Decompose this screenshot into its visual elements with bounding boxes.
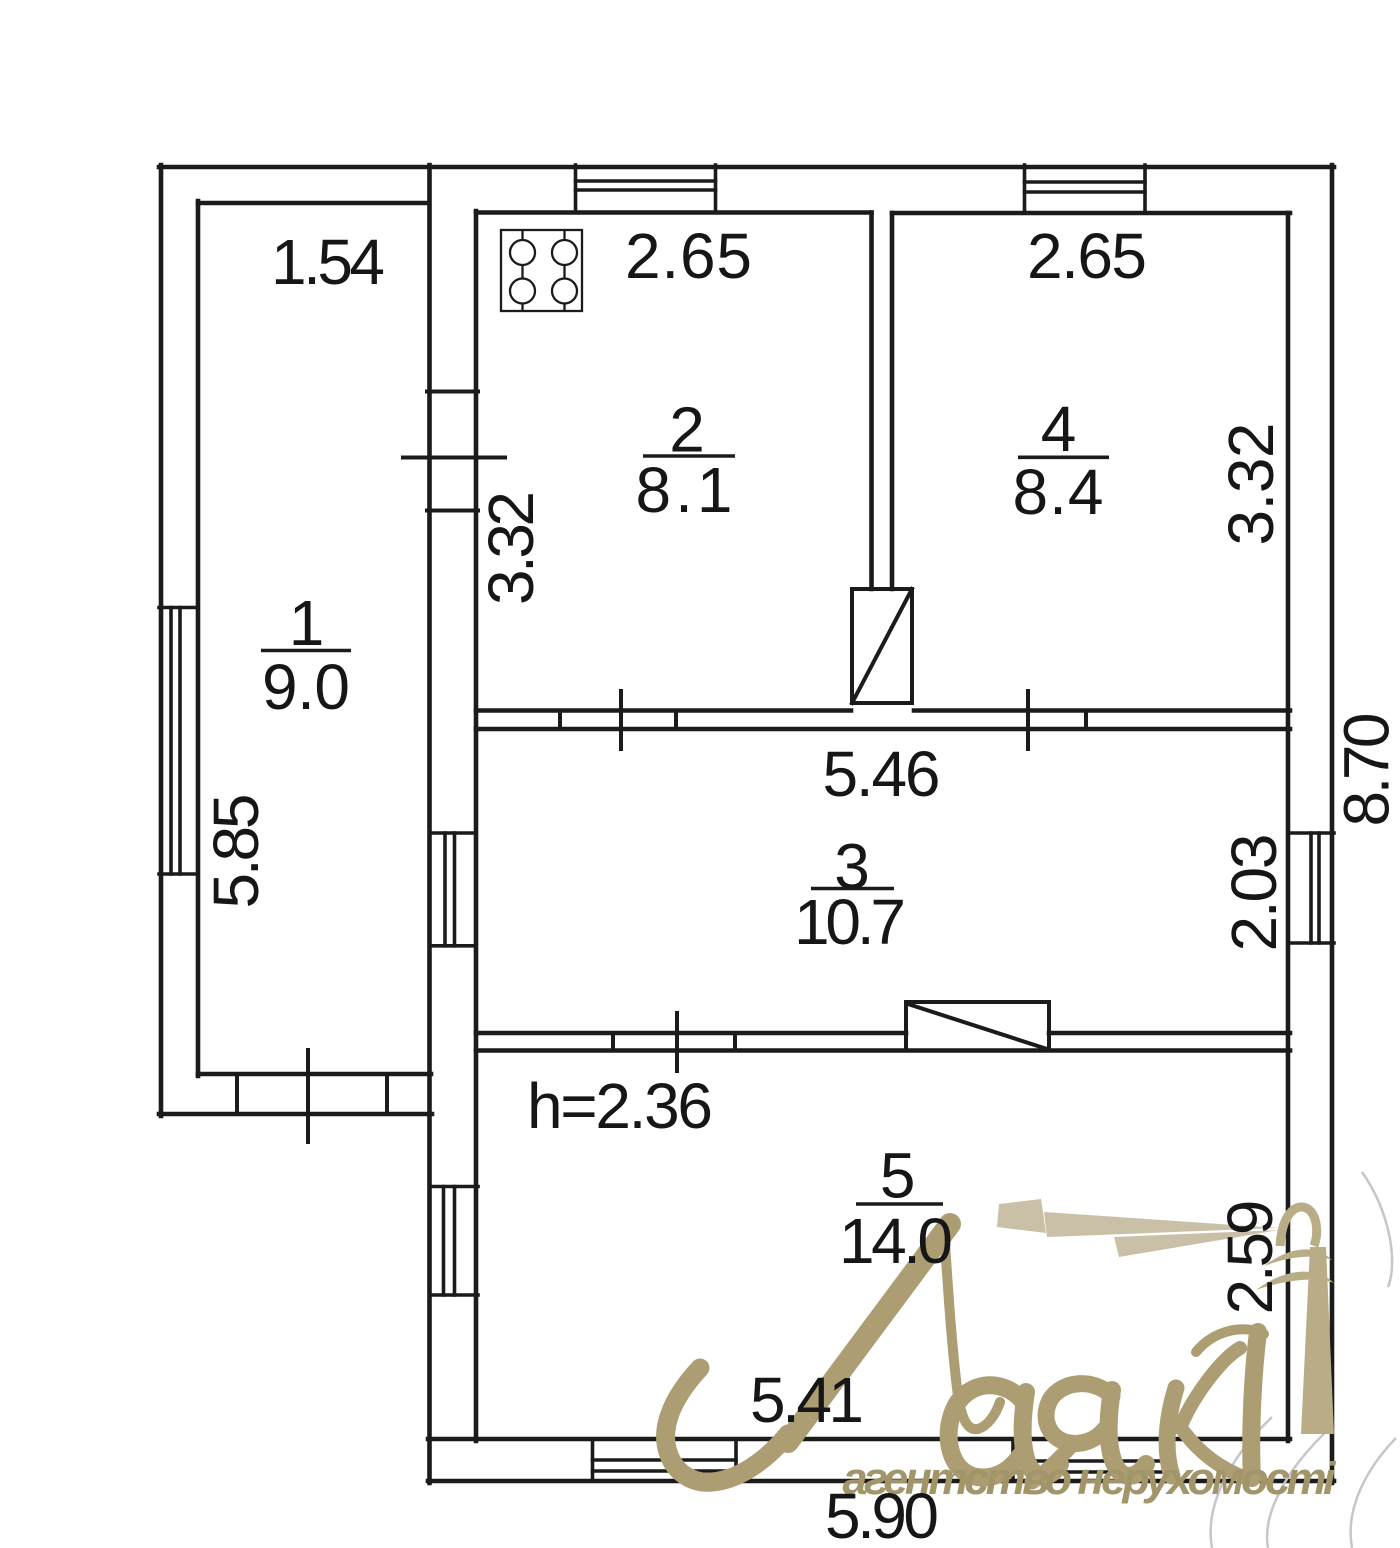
svg-text:8.70: 8.70 bbox=[1331, 713, 1400, 827]
svg-text:8.4: 8.4 bbox=[1013, 456, 1104, 528]
svg-text:1.54: 1.54 bbox=[271, 226, 385, 298]
svg-text:2.59: 2.59 bbox=[1214, 1200, 1286, 1315]
svg-text:2.65: 2.65 bbox=[1027, 220, 1147, 292]
svg-text:5.90: 5.90 bbox=[825, 1480, 939, 1548]
svg-text:3.32: 3.32 bbox=[475, 491, 547, 605]
svg-text:10.7: 10.7 bbox=[794, 886, 906, 958]
svg-text:8.1: 8.1 bbox=[636, 454, 733, 526]
svg-text:3.32: 3.32 bbox=[1215, 423, 1287, 546]
svg-text:9.0: 9.0 bbox=[262, 651, 350, 723]
svg-text:4: 4 bbox=[1041, 393, 1077, 465]
svg-text:5: 5 bbox=[880, 1140, 916, 1212]
svg-text:5.46: 5.46 bbox=[823, 738, 941, 810]
svg-text:5.85: 5.85 bbox=[200, 794, 272, 909]
svg-text:14.0: 14.0 bbox=[839, 1205, 953, 1277]
svg-text:5.41: 5.41 bbox=[750, 1364, 864, 1436]
svg-text:h=2.36: h=2.36 bbox=[527, 1070, 713, 1142]
svg-text:2.03: 2.03 bbox=[1218, 834, 1290, 952]
svg-text:1: 1 bbox=[289, 587, 325, 659]
svg-text:2.65: 2.65 bbox=[625, 220, 752, 292]
